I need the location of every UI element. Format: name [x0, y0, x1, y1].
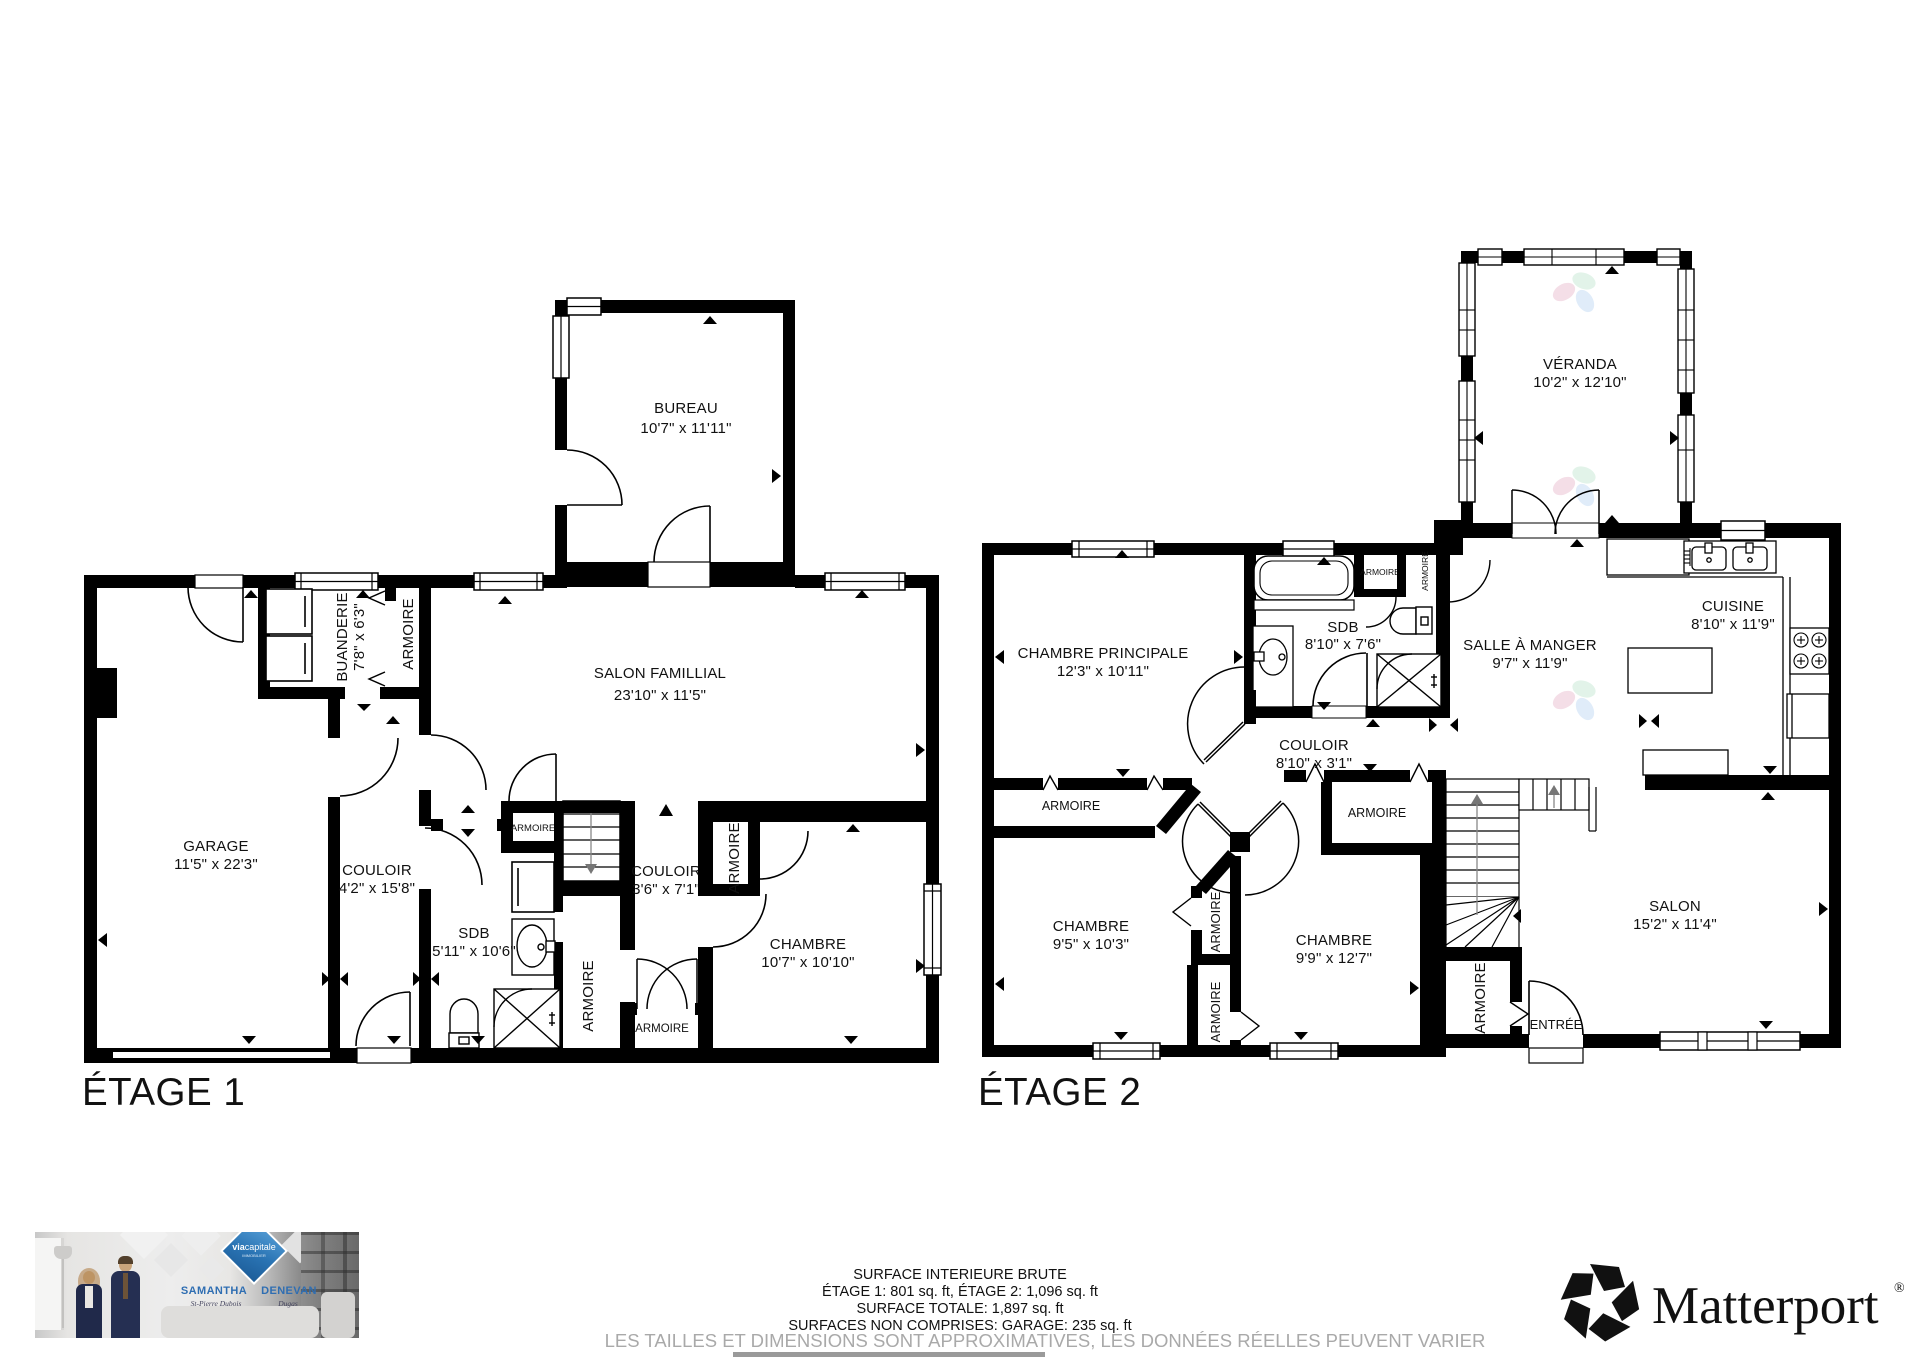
svg-text:ENTRÉE: ENTRÉE	[1530, 1017, 1583, 1032]
svg-text:SURFACE INTERIEURE BRUTE: SURFACE INTERIEURE BRUTE	[853, 1267, 1067, 1283]
svg-text:SALON FAMILLIAL: SALON FAMILLIAL	[594, 665, 726, 682]
svg-text:9'5" x 10'3": 9'5" x 10'3"	[1053, 936, 1129, 953]
svg-text:23'10" x 11'5": 23'10" x 11'5"	[614, 687, 706, 704]
svg-text:4'2" x 15'8": 4'2" x 15'8"	[339, 880, 415, 897]
svg-text:12'3" x 10'11": 12'3" x 10'11"	[1057, 663, 1149, 680]
svg-text:ARMOIRE: ARMOIRE	[726, 822, 743, 893]
svg-text:®: ®	[1894, 1281, 1905, 1296]
svg-text:ÉTAGE 1: ÉTAGE 1	[82, 1071, 245, 1114]
svg-text:SDB: SDB	[1327, 619, 1358, 636]
svg-text:LES TAILLES ET DIMENSIONS SONT: LES TAILLES ET DIMENSIONS SONT APPROXIMA…	[605, 1330, 1486, 1351]
svg-text:9'7" x 11'9": 9'7" x 11'9"	[1492, 655, 1567, 672]
svg-text:ARMOIRE: ARMOIRE	[1208, 981, 1223, 1042]
svg-text:8'10" x 3'1": 8'10" x 3'1"	[1276, 755, 1352, 772]
svg-text:VÉRANDA: VÉRANDA	[1543, 356, 1617, 373]
svg-text:BUANDERIE: BUANDERIE	[334, 592, 351, 681]
svg-text:ARMOIRE: ARMOIRE	[1420, 551, 1430, 591]
svg-text:ARMOIRE: ARMOIRE	[580, 960, 597, 1031]
svg-text:ÉTAGE 2: ÉTAGE 2	[978, 1071, 1141, 1114]
svg-text:10'7" x 11'11": 10'7" x 11'11"	[640, 420, 731, 437]
svg-text:GARAGE: GARAGE	[183, 838, 248, 855]
svg-text:CHAMBRE: CHAMBRE	[1053, 918, 1129, 935]
svg-text:3'6" x 7'1": 3'6" x 7'1"	[632, 881, 700, 898]
svg-text:10'2" x 12'10": 10'2" x 12'10"	[1533, 374, 1626, 391]
svg-text:SDB: SDB	[458, 925, 489, 942]
svg-text:10'7" x 10'10": 10'7" x 10'10"	[761, 954, 854, 971]
svg-text:ARMOIRE: ARMOIRE	[400, 598, 417, 669]
svg-text:ARMOIRE: ARMOIRE	[1472, 962, 1489, 1033]
svg-text:COULOIR: COULOIR	[342, 862, 412, 879]
svg-text:CHAMBRE PRINCIPALE: CHAMBRE PRINCIPALE	[1018, 645, 1189, 662]
svg-text:11'5" x 22'3": 11'5" x 22'3"	[174, 856, 258, 873]
svg-text:8'10" x 7'6": 8'10" x 7'6"	[1305, 636, 1381, 653]
svg-text:15'2" x 11'4": 15'2" x 11'4"	[1633, 916, 1717, 933]
svg-text:5'11" x 10'6": 5'11" x 10'6"	[432, 943, 516, 960]
svg-text:ARMOIRE: ARMOIRE	[1042, 799, 1100, 813]
svg-text:CHAMBRE: CHAMBRE	[770, 936, 846, 953]
svg-text:ARMOIRE: ARMOIRE	[1208, 891, 1223, 952]
svg-text:SALON: SALON	[1649, 898, 1701, 915]
svg-text:BUREAU: BUREAU	[654, 400, 718, 417]
svg-text:SURFACE TOTALE: 1,897 sq. ft: SURFACE TOTALE: 1,897 sq. ft	[856, 1301, 1063, 1317]
svg-text:9'9" x 12'7": 9'9" x 12'7"	[1296, 950, 1372, 967]
svg-text:CUISINE: CUISINE	[1702, 598, 1764, 615]
svg-text:8'10" x 11'9": 8'10" x 11'9"	[1691, 616, 1775, 633]
svg-text:CHAMBRE: CHAMBRE	[1296, 932, 1372, 949]
svg-text:7'8" x 6'3": 7'8" x 6'3"	[351, 603, 368, 671]
svg-text:ARMOIRE: ARMOIRE	[635, 1023, 689, 1035]
svg-text:COULOIR: COULOIR	[631, 863, 701, 880]
svg-text:ARMOIRE: ARMOIRE	[511, 823, 555, 834]
svg-text:ARMOIRE: ARMOIRE	[1360, 567, 1400, 577]
svg-text:SALLE À MANGER: SALLE À MANGER	[1463, 637, 1597, 654]
svg-text:ARMOIRE: ARMOIRE	[1348, 806, 1406, 820]
svg-text:COULOIR: COULOIR	[1279, 737, 1349, 754]
svg-text:Matterport: Matterport	[1652, 1277, 1879, 1335]
svg-text:ÉTAGE 1: 801 sq. ft, ÉTAGE 2:: ÉTAGE 1: 801 sq. ft, ÉTAGE 2: 1,096 sq. …	[822, 1283, 1098, 1300]
